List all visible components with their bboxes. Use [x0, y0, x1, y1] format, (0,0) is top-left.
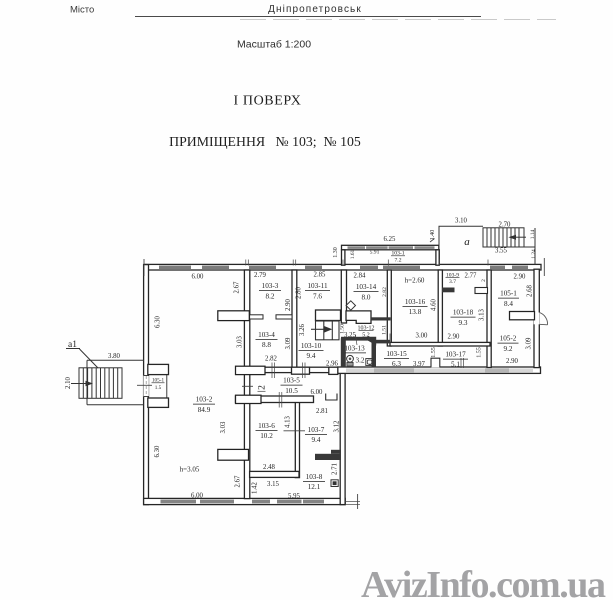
- svg-text:2.85: 2.85: [314, 272, 326, 279]
- svg-text:8.0: 8.0: [362, 294, 371, 302]
- svg-text:103-16: 103-16: [405, 298, 426, 306]
- svg-text:10.5: 10.5: [285, 387, 298, 395]
- svg-text:2: 2: [257, 385, 267, 390]
- svg-text:9.3: 9.3: [459, 319, 468, 327]
- svg-text:5.91: 5.91: [370, 250, 380, 256]
- svg-text:2.81: 2.81: [316, 408, 328, 415]
- svg-text:3.09: 3.09: [285, 337, 292, 349]
- svg-text:3.7: 3.7: [449, 279, 456, 285]
- svg-text:2.79: 2.79: [254, 272, 266, 279]
- svg-text:103-2: 103-2: [196, 396, 213, 404]
- svg-text:1.5: 1.5: [155, 385, 162, 391]
- svg-text:1.24: 1.24: [531, 249, 537, 259]
- svg-text:7.2: 7.2: [395, 258, 402, 264]
- svg-text:1.61: 1.61: [350, 249, 356, 259]
- svg-text:2: 2: [481, 279, 487, 282]
- svg-text:3.00: 3.00: [416, 333, 428, 340]
- svg-text:2.48: 2.48: [263, 464, 275, 471]
- svg-text:h=3.05: h=3.05: [180, 466, 200, 474]
- svg-text:5.1: 5.1: [451, 361, 460, 369]
- svg-text:3.09: 3.09: [525, 337, 532, 349]
- svg-text:2.84: 2.84: [354, 273, 366, 280]
- svg-text:6.00: 6.00: [192, 274, 204, 281]
- svg-text:Масштаб 1:200: Масштаб 1:200: [237, 39, 311, 51]
- svg-text:а: а: [464, 236, 470, 248]
- svg-text:2.67: 2.67: [233, 281, 240, 293]
- svg-text:3.55: 3.55: [495, 248, 507, 255]
- svg-text:2.90: 2.90: [514, 274, 526, 281]
- svg-text:3.03: 3.03: [236, 335, 243, 347]
- svg-text:2.80: 2.80: [295, 286, 302, 298]
- svg-text:2.90: 2.90: [506, 358, 518, 365]
- svg-text:103-17: 103-17: [445, 351, 466, 359]
- svg-text:2.68: 2.68: [526, 284, 533, 296]
- svg-text:5.2: 5.2: [362, 333, 370, 339]
- svg-text:2.67: 2.67: [234, 475, 241, 487]
- svg-text:5.95: 5.95: [288, 493, 300, 500]
- svg-text:2.77: 2.77: [465, 273, 477, 280]
- svg-text:1.42: 1.42: [251, 481, 258, 493]
- svg-text:6.25: 6.25: [384, 236, 396, 243]
- svg-text:3.12: 3.12: [333, 420, 340, 432]
- svg-text:2.70: 2.70: [499, 222, 511, 229]
- svg-text:3.26: 3.26: [299, 323, 306, 335]
- svg-text:103-11: 103-11: [307, 282, 328, 290]
- svg-text:103-3: 103-3: [262, 282, 279, 290]
- svg-text:103-8: 103-8: [306, 473, 323, 481]
- svg-text:105-1: 105-1: [500, 290, 517, 298]
- svg-text:1.55: 1.55: [476, 347, 482, 358]
- svg-text:3.2: 3.2: [356, 357, 365, 365]
- svg-text:2.82: 2.82: [382, 287, 388, 297]
- svg-text:103-15: 103-15: [386, 350, 407, 358]
- svg-text:105-2: 105-2: [500, 335, 517, 343]
- svg-text:9.4: 9.4: [312, 436, 321, 444]
- svg-text:3.10: 3.10: [455, 218, 467, 225]
- svg-text:AvizInfo.com.ua: AvizInfo.com.ua: [361, 564, 606, 600]
- svg-text:8.4: 8.4: [504, 300, 513, 308]
- svg-text:103-10: 103-10: [301, 342, 322, 350]
- svg-text:3.13: 3.13: [478, 308, 485, 320]
- svg-text:2.90: 2.90: [448, 334, 460, 341]
- svg-text:Дніпропетровськ: Дніпропетровськ: [268, 4, 362, 15]
- svg-text:103-14: 103-14: [356, 283, 377, 291]
- svg-text:І ПОВЕРХ: І ПОВЕРХ: [234, 94, 302, 109]
- svg-text:6.00: 6.00: [311, 389, 323, 396]
- svg-text:1.51: 1.51: [381, 325, 387, 335]
- svg-text:103-18: 103-18: [453, 309, 474, 317]
- svg-text:103-5: 103-5: [283, 377, 300, 385]
- svg-text:1.50: 1.50: [339, 324, 345, 334]
- svg-text:3.03: 3.03: [220, 421, 227, 433]
- svg-text:7.6: 7.6: [313, 293, 322, 301]
- svg-text:9.4: 9.4: [307, 352, 316, 360]
- svg-text:8.8: 8.8: [262, 341, 271, 349]
- svg-text:6.30: 6.30: [154, 315, 161, 327]
- svg-text:4.60: 4.60: [430, 298, 437, 310]
- svg-text:8.2: 8.2: [266, 293, 275, 301]
- svg-text:а1: а1: [68, 340, 77, 350]
- svg-text:Місто: Місто: [70, 5, 94, 16]
- svg-text:ПРИМІЩЕННЯ № 103; № 105: ПРИМІЩЕННЯ № 103; № 105: [169, 134, 361, 149]
- svg-text:84.9: 84.9: [198, 406, 211, 414]
- svg-text:1.14: 1.14: [530, 229, 536, 239]
- svg-text:3.15: 3.15: [267, 481, 279, 488]
- svg-text:6.00: 6.00: [191, 493, 203, 500]
- svg-text:3.97: 3.97: [413, 361, 425, 368]
- svg-text:2.71: 2.71: [331, 463, 338, 475]
- svg-text:2.96: 2.96: [326, 361, 338, 368]
- svg-text:103-6: 103-6: [258, 422, 275, 430]
- svg-text:103-13: 103-13: [344, 345, 365, 353]
- svg-text:10.2: 10.2: [260, 432, 273, 440]
- svg-text:2.90: 2.90: [285, 298, 292, 310]
- svg-text:h=2.60: h=2.60: [405, 277, 425, 285]
- svg-text:12.1: 12.1: [308, 483, 321, 491]
- svg-text:2.82: 2.82: [265, 356, 277, 363]
- svg-text:1.30: 1.30: [333, 247, 339, 258]
- svg-text:1.55: 1.55: [431, 347, 437, 358]
- svg-text:6.30: 6.30: [154, 445, 161, 457]
- svg-text:3.25: 3.25: [344, 332, 356, 339]
- svg-text:9.2: 9.2: [504, 345, 513, 353]
- svg-text:2.10: 2.10: [65, 376, 72, 388]
- svg-text:103-4: 103-4: [258, 331, 275, 339]
- svg-text:4.13: 4.13: [284, 415, 291, 427]
- svg-text:13.8: 13.8: [409, 308, 422, 316]
- svg-text:6.3: 6.3: [392, 360, 401, 368]
- svg-text:103-7: 103-7: [308, 426, 325, 434]
- svg-text:3.80: 3.80: [108, 353, 120, 360]
- svg-text:1.40: 1.40: [430, 230, 436, 241]
